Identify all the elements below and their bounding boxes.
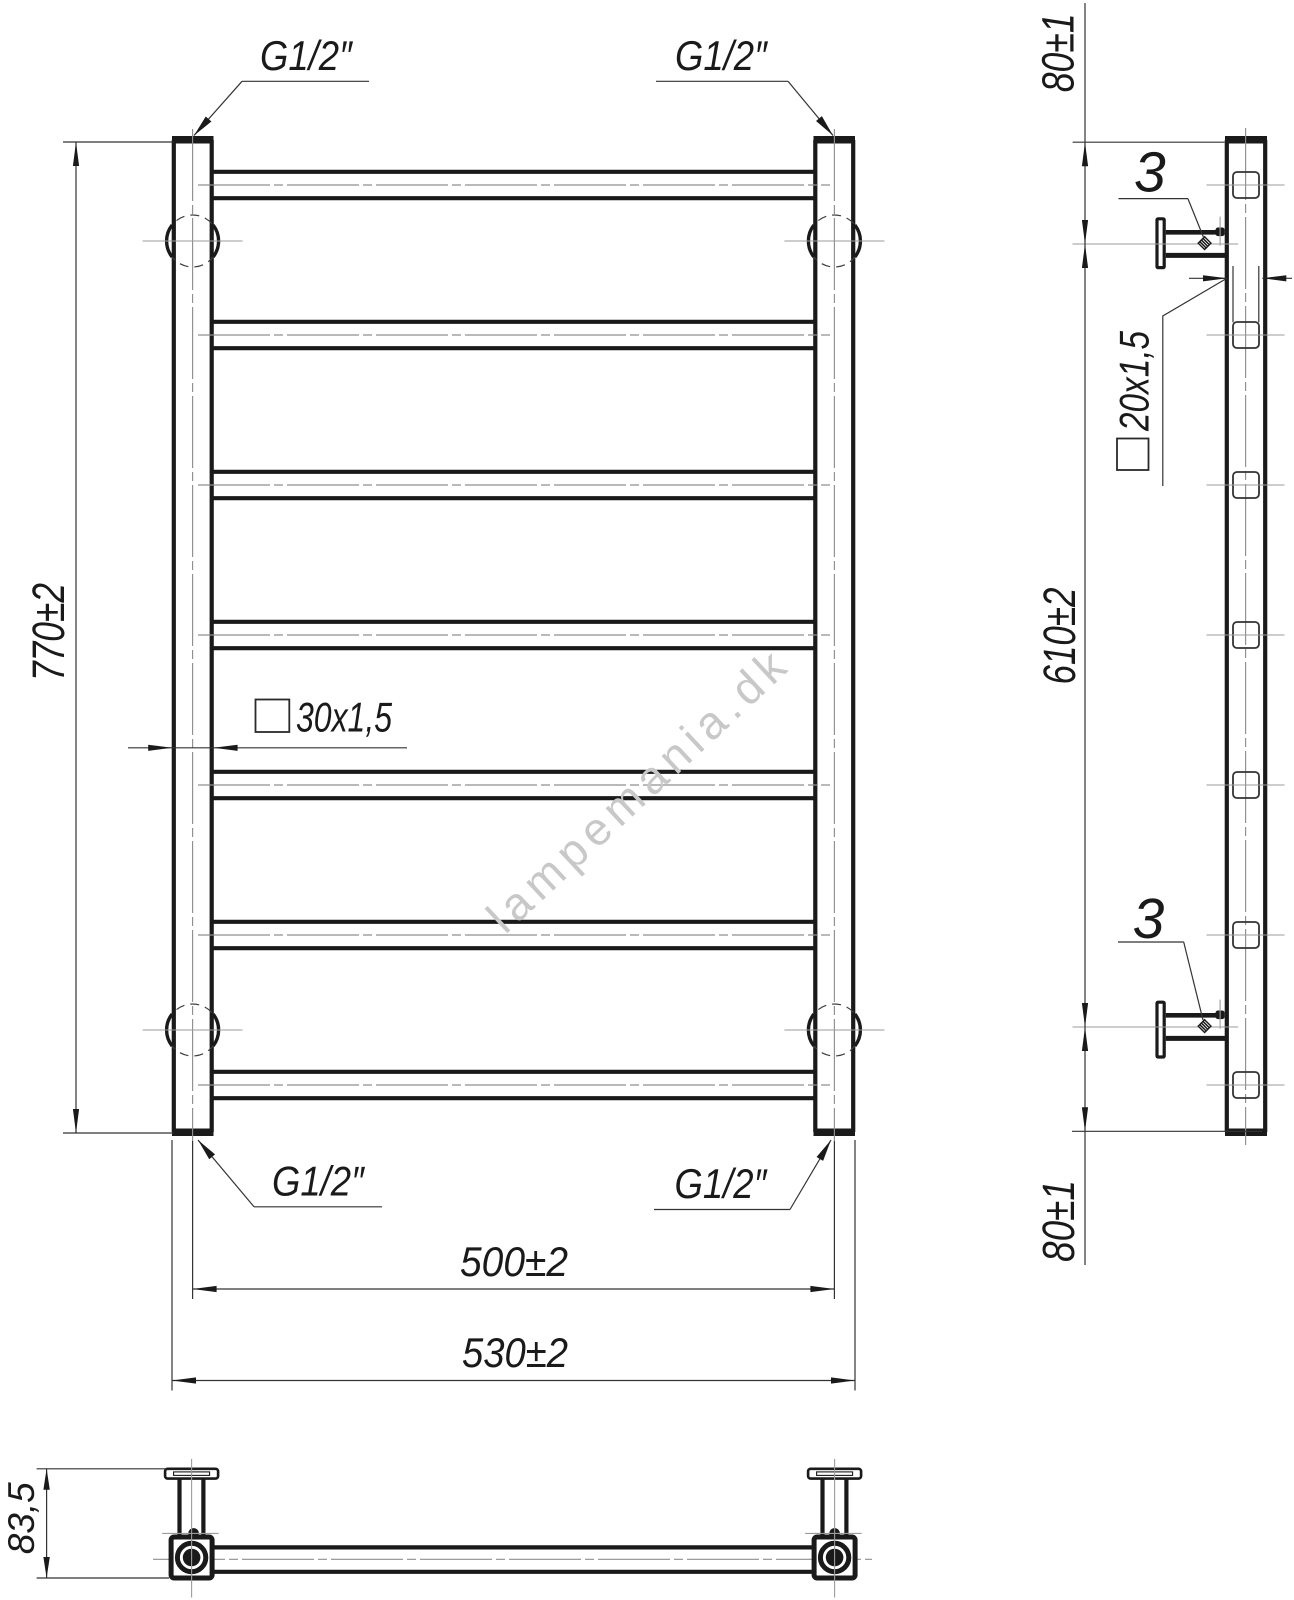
svg-text:610±2: 610±2 (1034, 588, 1085, 685)
svg-text:G1/2″: G1/2″ (675, 32, 769, 79)
svg-text:G1/2″: G1/2″ (260, 32, 354, 79)
svg-text:500±2: 500±2 (460, 1238, 568, 1285)
svg-text:3: 3 (1133, 887, 1165, 951)
svg-text:lampemania.dk: lampemania.dk (476, 639, 796, 942)
svg-text:30x1,5: 30x1,5 (296, 694, 392, 741)
svg-text:770±2: 770±2 (23, 583, 74, 681)
svg-text:G1/2″: G1/2″ (272, 1157, 366, 1204)
svg-text:80±1: 80±1 (1033, 13, 1084, 92)
svg-text:83,5: 83,5 (1, 1482, 42, 1554)
svg-text:3: 3 (1134, 141, 1166, 205)
svg-text:80±1: 80±1 (1033, 1180, 1084, 1262)
svg-text:530±2: 530±2 (462, 1329, 568, 1376)
svg-text:G1/2″: G1/2″ (675, 1160, 769, 1207)
svg-text:20x1,5: 20x1,5 (1111, 330, 1158, 431)
